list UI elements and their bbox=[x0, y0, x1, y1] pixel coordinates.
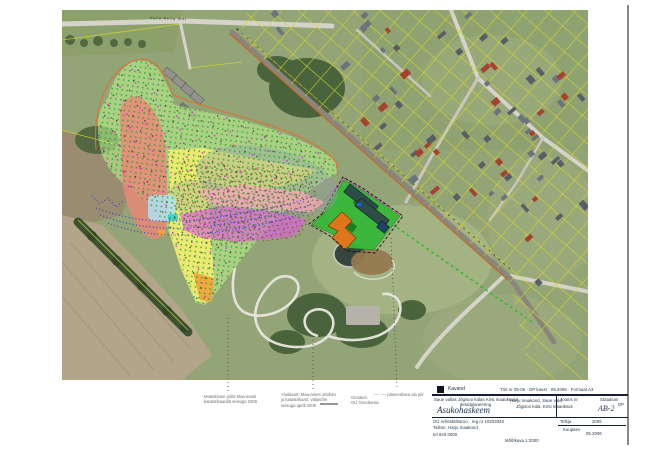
sheet-label: Joonis nr bbox=[560, 397, 578, 402]
client-value: 2006 bbox=[592, 419, 602, 424]
date-label: Kuupäev bbox=[563, 427, 580, 432]
client-label: Tellija bbox=[560, 419, 571, 424]
sports-field bbox=[351, 249, 393, 275]
firm-line-1: OÜ Arhitektibüroo · reg nr 10203040 bbox=[433, 419, 504, 424]
date-value: 05.2006 bbox=[586, 431, 602, 436]
stage-label: Staadium bbox=[600, 397, 619, 402]
plan-sheet: Vana-Keila mnt Maaüksuse piirid Maa-amet… bbox=[0, 0, 650, 459]
blue-marker bbox=[357, 203, 361, 206]
titleblock-divider bbox=[556, 396, 557, 417]
map-note-2: Aluskaart: Maa-ameti ortofotoja katastri… bbox=[281, 392, 336, 408]
client-underline bbox=[558, 425, 626, 426]
location-line-2: Jõgisoo küla, Kirsi maaüksus bbox=[516, 404, 573, 409]
parking-lot bbox=[346, 306, 380, 325]
map-note-4: — · — planeeritava ala piir bbox=[374, 392, 424, 397]
sheet-number: AB-2 bbox=[598, 404, 614, 413]
drawing-title: Asukohaskeem bbox=[437, 405, 490, 415]
firm-line-2: Tallinn, Harju maakond bbox=[433, 425, 478, 430]
scale-note: Mõõtkava 1:2000 bbox=[505, 438, 539, 443]
location-line-1: Harju maakond, Saue vald bbox=[510, 398, 562, 403]
map-note-1: Maaüksuse piirid Maa-ametikatastrikaardi… bbox=[204, 394, 257, 405]
firm-line-3: tel 640 0000 bbox=[433, 432, 457, 437]
stage-value: DP bbox=[618, 402, 624, 407]
titleblock-rule-top bbox=[432, 394, 628, 396]
company-logo-icon bbox=[437, 386, 444, 393]
titleblock-rule-mid bbox=[432, 417, 628, 418]
aerial-photo: Vana-Keila mnt bbox=[0, 0, 650, 436]
job-info: Töö nr 05-05 · DP kaust · 05.2006 · Form… bbox=[500, 387, 593, 392]
brand-name: Kavand bbox=[448, 386, 465, 392]
